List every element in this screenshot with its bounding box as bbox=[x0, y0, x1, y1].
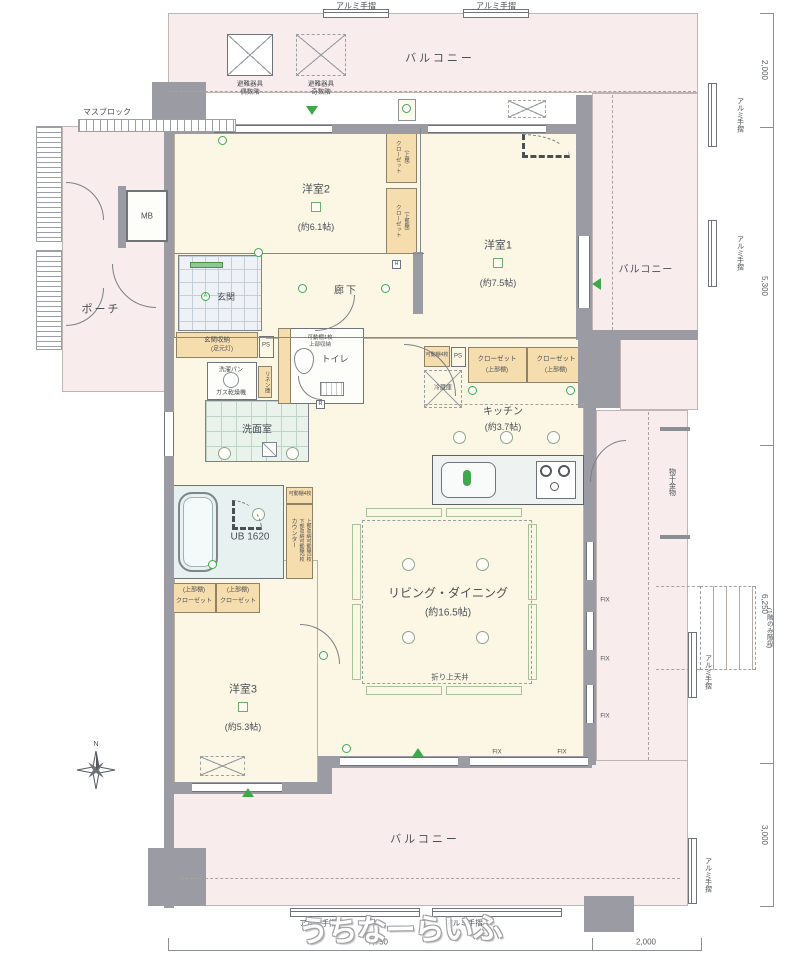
stove-burner-2 bbox=[558, 465, 570, 477]
washroom-light-1 bbox=[218, 447, 231, 460]
symbol-dot-room3 bbox=[319, 651, 328, 660]
ps-box-1 bbox=[259, 336, 274, 358]
sink-faucet-icon bbox=[463, 470, 471, 486]
sofa-outline-bottom-2 bbox=[446, 686, 522, 695]
sofa-outline-top-2 bbox=[446, 508, 522, 517]
symbol-dot-ld bbox=[342, 744, 351, 753]
wall-corner-bottom-right bbox=[584, 896, 634, 932]
window-bed1-side bbox=[578, 236, 590, 308]
ld-downlight-2 bbox=[476, 558, 489, 571]
evac-even-label-2: 偶数階 bbox=[240, 88, 260, 95]
balcony-lower-dashed bbox=[648, 412, 649, 760]
dim-tick-b1 bbox=[592, 938, 593, 951]
room2-label: 洋室2 bbox=[302, 184, 330, 197]
handrail-right-1 bbox=[708, 83, 717, 147]
sofa-outline-left-2 bbox=[352, 604, 361, 680]
fix-label-2: FIX bbox=[600, 657, 609, 664]
closet-room3-1-shelf: (上部棚) bbox=[183, 588, 205, 595]
linen-label: リネン庫 bbox=[263, 371, 269, 393]
ld-downlight-1 bbox=[402, 558, 415, 571]
counter-upper-label: 上部収納可動棚1枚 bbox=[306, 519, 311, 562]
porch-area bbox=[62, 126, 166, 392]
floor-plan: R H A アルミ手摺 アルミ手摺 バルコニー 避難器具 偶数階 避難器具 奇数… bbox=[0, 0, 791, 960]
faucet-icon bbox=[402, 104, 411, 113]
marker-h: H bbox=[392, 260, 401, 269]
divider-hall-bottom bbox=[174, 337, 578, 338]
laundry-hook-bar-2 bbox=[660, 535, 690, 539]
fix-label-3: FIX bbox=[600, 714, 609, 721]
balcony-right-upper bbox=[592, 93, 698, 332]
dim-tick-b0 bbox=[168, 938, 169, 951]
balcony-bottom-dashed bbox=[180, 878, 680, 879]
mas-block-strip bbox=[78, 119, 236, 132]
symbol-dot-bed2b bbox=[254, 248, 263, 257]
symbol-triangle-top bbox=[306, 106, 318, 115]
window-fix-3 bbox=[586, 685, 594, 723]
dim-tick-r0 bbox=[760, 13, 774, 14]
washbasin bbox=[262, 442, 277, 457]
room3-label: 洋室3 bbox=[229, 684, 257, 697]
handrail-right-label-3: アルミ手摺 bbox=[705, 655, 712, 690]
window-washroom-side bbox=[164, 412, 174, 456]
washroom-light-2 bbox=[286, 447, 299, 460]
window-bed1 bbox=[428, 125, 546, 133]
room1-label: 洋室1 bbox=[484, 240, 512, 253]
laundry-hook-label: 物干金物 bbox=[669, 468, 676, 496]
balcony-right-notch bbox=[620, 332, 698, 410]
kitchen-label: キッチン bbox=[483, 406, 523, 418]
ld-downlight-3 bbox=[402, 631, 415, 644]
laundry-pan-label: 洗濯パン bbox=[219, 368, 243, 375]
window-fix-1 bbox=[586, 542, 594, 580]
mb-label: MB bbox=[141, 211, 153, 220]
symbol-triangle-bottom-1 bbox=[242, 788, 254, 797]
handrail-right-3 bbox=[688, 632, 697, 698]
stove-burner-1 bbox=[540, 465, 552, 477]
dim-line-bottom bbox=[168, 950, 702, 951]
toilet-label: トイレ bbox=[321, 354, 348, 364]
room3-dashed-box bbox=[200, 756, 245, 776]
closet-bed2-top-label: クローゼット bbox=[394, 141, 400, 174]
evac-even-label-1: 避難器具 bbox=[237, 80, 263, 87]
genkan-label: 玄関 bbox=[217, 292, 235, 302]
handrail-right-label-4: アルミ手摺 bbox=[705, 858, 712, 893]
living-label: リビング・ダイニング bbox=[388, 587, 508, 601]
unit-bath-label: UB 1620 bbox=[231, 531, 270, 543]
divider-bed2-hall bbox=[174, 253, 424, 254]
closet-bed2-bottom-label: クローゼット bbox=[394, 205, 400, 238]
dim-right-lower: 6,250 bbox=[760, 594, 768, 614]
dim-tick-b2 bbox=[701, 938, 702, 951]
dim-right-bottom: 3,000 bbox=[760, 825, 768, 845]
balcony-bottom-label: バルコニー bbox=[390, 834, 460, 847]
balcony-right-dashed bbox=[612, 95, 613, 330]
room3-size-label: (約5.3帖) bbox=[225, 722, 262, 732]
wall-corner-bottom-left bbox=[148, 848, 206, 906]
toilet-washlet bbox=[320, 382, 344, 396]
closet-bed2-bottom-shelf: (上部棚) bbox=[404, 212, 409, 230]
stove-burner-3 bbox=[550, 482, 559, 491]
dim-right-top: 2,000 bbox=[760, 60, 768, 80]
ps-box-2 bbox=[451, 347, 466, 367]
sofa-outline-top-1 bbox=[366, 508, 442, 517]
kitchen-light-1 bbox=[453, 431, 466, 444]
coffered-ceiling bbox=[362, 520, 532, 684]
toilet-shelf-label-2: 上部収納 bbox=[309, 342, 331, 348]
balcony-top-label: バルコニー bbox=[405, 53, 475, 66]
louver-left-1 bbox=[36, 126, 62, 242]
coffered-ceiling-label: 折り上天井 bbox=[431, 674, 469, 683]
window-room3-bottom bbox=[192, 783, 282, 792]
dim-tick-r4 bbox=[760, 906, 774, 907]
symbol-dot-kitchen-1 bbox=[468, 386, 477, 395]
closet-bed2-top bbox=[386, 133, 417, 183]
closet-kitchen-1-shelf: (上部棚) bbox=[486, 368, 508, 375]
stairs-link-top bbox=[656, 586, 700, 587]
sofa-outline-left-1 bbox=[352, 524, 361, 600]
symbol-dot-kitchen-2 bbox=[566, 386, 575, 395]
evac-odd-label-2: 奇数階 bbox=[311, 88, 331, 95]
handrail-right-label-2: アルミ手摺 bbox=[737, 236, 744, 271]
kitchen-light-3 bbox=[547, 431, 560, 444]
dim-tick-r1 bbox=[760, 127, 774, 128]
divider-bed1-left bbox=[420, 128, 421, 254]
closet-kitchen-1 bbox=[468, 347, 527, 383]
kitchen-size-label: (約3.7帖) bbox=[485, 422, 522, 432]
counter-label: カウンター bbox=[290, 518, 296, 548]
kitchen-light-2 bbox=[500, 431, 513, 444]
bath-faucet-icon bbox=[208, 560, 217, 569]
closet-room3-2-label: クローゼット bbox=[220, 599, 256, 606]
window-ld-bottom-2 bbox=[470, 757, 588, 766]
gas-dryer-label: ガス乾燥機 bbox=[216, 391, 246, 398]
fix-label-1: FIX bbox=[600, 598, 609, 605]
handrail-top-label-2: アルミ手摺 bbox=[476, 1, 516, 10]
dim-tick-r3 bbox=[760, 763, 774, 764]
symbol-triangle-right bbox=[592, 278, 601, 290]
compass-icon bbox=[76, 750, 116, 790]
marker-r: R bbox=[316, 400, 325, 409]
handrail-right-label-1: アルミ手摺 bbox=[737, 98, 744, 133]
foot-light-label: (足元灯) bbox=[211, 347, 233, 354]
room2-light-symbol bbox=[311, 202, 321, 212]
symbol-dot-hall-1 bbox=[298, 284, 307, 293]
porch-label: ポーチ bbox=[82, 304, 121, 317]
genkan-storage-label: 玄関収納 bbox=[204, 336, 230, 343]
closet-room3-2-shelf: (上部棚) bbox=[227, 588, 249, 595]
room1-size-label: (約7.5帖) bbox=[480, 278, 517, 288]
room1-light-symbol bbox=[493, 258, 503, 268]
sofa-outline-right-2 bbox=[528, 604, 537, 680]
laundry-hook-bar-1 bbox=[660, 427, 690, 431]
window-ld-bottom-1 bbox=[340, 757, 458, 766]
room2-size-label: (約6.1帖) bbox=[298, 222, 335, 232]
symbol-triangle-bottom-2 bbox=[412, 748, 424, 757]
closet-kitchen-2-label: クローゼット bbox=[537, 355, 576, 362]
evac-hatch-odd bbox=[296, 34, 346, 76]
toilet-shelf-strip bbox=[278, 328, 291, 404]
room3-light-symbol bbox=[238, 702, 248, 712]
dim-bottom-right: 2,000 bbox=[636, 937, 656, 946]
watermark: うちなーらいふ bbox=[298, 903, 502, 951]
symbol-dot-hall-2 bbox=[381, 284, 390, 293]
wall-hall-right bbox=[413, 252, 423, 314]
handrail-top-label-1: アルミ手摺 bbox=[336, 1, 376, 10]
closet-kitchen-1-label: クローゼット bbox=[478, 355, 517, 362]
mas-block-label: マスブロック bbox=[83, 107, 131, 116]
closet-bed2-top-shelf: (上棚) bbox=[404, 150, 409, 163]
marker-a: A bbox=[201, 292, 210, 301]
hallway-label: 廊下 bbox=[334, 285, 358, 297]
closet-kitchen-2-shelf: (上部棚) bbox=[545, 368, 567, 375]
dim-right-upper: 5,300 bbox=[760, 276, 768, 296]
living-size-label: (約16.5帖) bbox=[425, 607, 471, 619]
compass-n-label: N bbox=[93, 741, 98, 749]
balcony-right-label: バルコニー bbox=[619, 264, 674, 276]
toilet-shelf-label-1: 可動棚1枚 bbox=[307, 335, 332, 341]
dim-line-right bbox=[773, 13, 774, 907]
evac-hatch-even bbox=[227, 34, 273, 76]
closet-bed2-bottom bbox=[386, 188, 417, 254]
wall-kitchen-block bbox=[578, 338, 620, 408]
handrail-right-2 bbox=[708, 220, 717, 287]
evac-odd-label-1: 避難器具 bbox=[308, 80, 334, 87]
closet-room3-1-label: クローゼット bbox=[176, 599, 212, 606]
counter-lower-label: 下部収納可動棚2枚 bbox=[299, 519, 304, 562]
window-fix-2 bbox=[586, 612, 594, 650]
kitchen-shelf-label: 可動棚4枚 bbox=[426, 353, 449, 359]
washroom-label: 洗面室 bbox=[242, 424, 272, 436]
fridge-label: 冷蔵庫 bbox=[434, 386, 452, 393]
handrail-right-4 bbox=[688, 838, 697, 904]
symbol-dot-bed2 bbox=[218, 136, 227, 145]
louver-left-2 bbox=[36, 250, 62, 350]
sofa-outline-right-1 bbox=[528, 524, 537, 600]
fix-label-4: FIX bbox=[492, 750, 501, 757]
ac-unit-box bbox=[508, 100, 546, 118]
sofa-outline-bottom-1 bbox=[366, 686, 442, 695]
genkan-step bbox=[190, 262, 223, 268]
dim-tick-r2 bbox=[760, 445, 774, 446]
ld-downlight-4 bbox=[476, 631, 489, 644]
counter-shelf-label: 可動棚4枚 bbox=[289, 492, 312, 498]
fix-label-5: FIX bbox=[557, 750, 566, 757]
wall-mb-left bbox=[118, 186, 126, 248]
